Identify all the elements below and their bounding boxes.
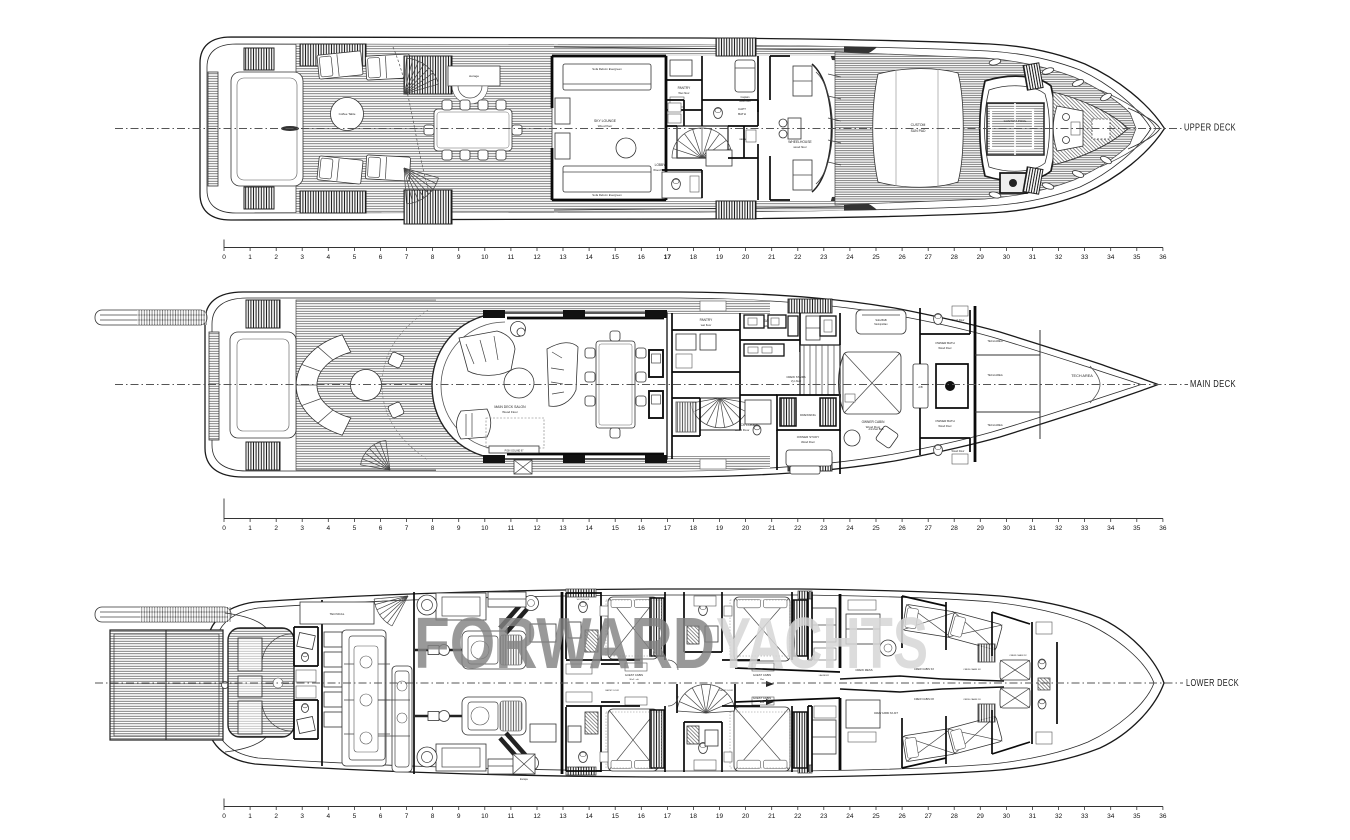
svg-text:10: 10 xyxy=(481,254,489,261)
svg-text:CARPET FLOOR: CARPET FLOOR xyxy=(605,689,620,692)
svg-text:25: 25 xyxy=(872,525,880,532)
svg-text:1: 1 xyxy=(248,254,252,261)
svg-text:Wood Floor: Wood Floor xyxy=(502,410,517,414)
svg-text:PANTRY: PANTRY xyxy=(678,86,692,90)
svg-text:3: 3 xyxy=(300,254,304,261)
svg-text:28: 28 xyxy=(951,254,959,261)
svg-text:35: 35 xyxy=(1133,813,1141,820)
svg-text:2: 2 xyxy=(274,254,278,261)
svg-text:Vyn floor: Vyn floor xyxy=(791,379,801,383)
svg-text:Captain: Captain xyxy=(741,95,750,99)
svg-text:32: 32 xyxy=(1055,525,1063,532)
svg-text:Coffee Table: Coffee Table xyxy=(339,112,356,116)
svg-text:Escape: Escape xyxy=(520,778,529,781)
svg-text:TECH AREA: TECH AREA xyxy=(987,373,1002,377)
svg-text:14: 14 xyxy=(585,813,593,820)
svg-text:9: 9 xyxy=(457,813,461,820)
svg-text:25: 25 xyxy=(872,254,880,261)
svg-text:13: 13 xyxy=(559,254,567,261)
svg-text:23: 23 xyxy=(820,813,828,820)
svg-text:5: 5 xyxy=(353,254,357,261)
svg-text:8: 8 xyxy=(431,813,435,820)
svg-text:26: 26 xyxy=(898,813,906,820)
svg-text:9: 9 xyxy=(457,525,461,532)
svg-text:CUSTOM: CUSTOM xyxy=(911,123,926,127)
svg-text:10: 10 xyxy=(481,813,489,820)
svg-text:23: 23 xyxy=(820,525,828,532)
svg-text:15: 15 xyxy=(612,813,620,820)
svg-text:13: 13 xyxy=(559,525,567,532)
svg-text:19: 19 xyxy=(716,254,724,261)
svg-text:6: 6 xyxy=(379,813,383,820)
svg-text:16: 16 xyxy=(638,525,646,532)
svg-text:14: 14 xyxy=(585,254,593,261)
svg-text:18: 18 xyxy=(690,254,698,261)
svg-text:4: 4 xyxy=(326,525,330,532)
svg-text:36: 36 xyxy=(1159,254,1167,261)
svg-text:WHEELHOUSE: WHEELHOUSE xyxy=(788,140,812,144)
svg-text:CREW CABIN 2X: CREW CABIN 2X xyxy=(1009,654,1027,657)
svg-text:23: 23 xyxy=(820,254,828,261)
svg-text:OWNER BATH: OWNER BATH xyxy=(935,419,954,423)
svg-text:12: 12 xyxy=(533,525,541,532)
svg-text:CREW CABIN SX AFT: CREW CABIN SX AFT xyxy=(874,712,899,715)
svg-text:CUSTOM POOL: CUSTOM POOL xyxy=(1004,119,1027,123)
svg-text:OWNER CABIN: OWNER CABIN xyxy=(862,420,886,424)
svg-text:DRESSING: DRESSING xyxy=(800,413,816,417)
svg-text:1: 1 xyxy=(248,813,252,820)
svg-text:WOOD FLOOR: WOOD FLOOR xyxy=(577,599,590,601)
svg-text:UPPER DECK: UPPER DECK xyxy=(1184,123,1236,134)
svg-text:8: 8 xyxy=(431,254,435,261)
svg-text:LOWER DECK: LOWER DECK xyxy=(1186,678,1239,689)
svg-text:Armchair B&B: Armchair B&B xyxy=(868,428,883,431)
svg-text:12: 12 xyxy=(533,254,541,261)
svg-text:21: 21 xyxy=(768,254,776,261)
svg-text:YACHTS: YACHTS xyxy=(716,604,928,684)
svg-text:20: 20 xyxy=(742,254,750,261)
svg-text:19: 19 xyxy=(716,525,724,532)
svg-text:20: 20 xyxy=(742,813,750,820)
svg-text:35: 35 xyxy=(1133,525,1141,532)
svg-text:10: 10 xyxy=(481,525,489,532)
svg-text:26: 26 xyxy=(898,254,906,261)
svg-text:SKY LOUNGE: SKY LOUNGE xyxy=(594,119,617,123)
svg-text:MAIN DECK: MAIN DECK xyxy=(1190,379,1236,390)
svg-text:17: 17 xyxy=(664,254,672,261)
svg-text:17: 17 xyxy=(664,525,672,532)
svg-text:OWNER STUDY: OWNER STUDY xyxy=(797,435,820,439)
svg-text:Sofa Reform Evergreen: Sofa Reform Evergreen xyxy=(592,193,622,197)
svg-text:16: 16 xyxy=(638,813,646,820)
svg-text:24: 24 xyxy=(846,254,854,261)
svg-text:SUN PAD: SUN PAD xyxy=(911,129,926,133)
svg-text:8: 8 xyxy=(431,525,435,532)
svg-text:18: 18 xyxy=(690,525,698,532)
svg-text:1: 1 xyxy=(248,525,252,532)
svg-text:TECH AREA: TECH AREA xyxy=(987,423,1002,427)
svg-text:12: 12 xyxy=(533,813,541,820)
svg-text:CARPET FLOOR: CARPET FLOOR xyxy=(719,689,734,692)
svg-text:13: 13 xyxy=(559,813,567,820)
svg-text:0: 0 xyxy=(222,525,226,532)
svg-text:Wood floor: Wood floor xyxy=(598,124,612,128)
svg-text:32: 32 xyxy=(1055,813,1063,820)
svg-text:31: 31 xyxy=(1029,254,1037,261)
svg-text:35: 35 xyxy=(1133,254,1141,261)
svg-text:TECNICAL: TECNICAL xyxy=(330,612,345,616)
svg-text:27: 27 xyxy=(925,813,933,820)
svg-text:TECH AREA: TECH AREA xyxy=(987,339,1002,343)
svg-text:17: 17 xyxy=(664,813,672,820)
svg-text:14: 14 xyxy=(585,525,593,532)
svg-text:7: 7 xyxy=(405,813,409,820)
svg-text:29: 29 xyxy=(977,525,985,532)
svg-text:24: 24 xyxy=(846,813,854,820)
svg-text:Wood Floor: Wood Floor xyxy=(801,440,815,444)
svg-text:4: 4 xyxy=(326,254,330,261)
svg-text:31: 31 xyxy=(1029,525,1037,532)
svg-text:3: 3 xyxy=(300,813,304,820)
svg-text:36: 36 xyxy=(1159,813,1167,820)
svg-text:9: 9 xyxy=(457,254,461,261)
svg-text:33: 33 xyxy=(1081,813,1089,820)
svg-text:0: 0 xyxy=(222,254,226,261)
svg-text:7: 7 xyxy=(405,254,409,261)
svg-text:31: 31 xyxy=(1029,813,1037,820)
svg-text:22: 22 xyxy=(794,813,802,820)
svg-text:Wood floor: Wood floor xyxy=(739,100,751,103)
svg-text:wet floor: wet floor xyxy=(701,323,712,327)
svg-text:34: 34 xyxy=(1107,525,1115,532)
svg-text:GUEST CABIN: GUEST CABIN xyxy=(753,696,771,700)
svg-text:TECH AREA: TECH AREA xyxy=(1071,374,1093,378)
svg-text:29: 29 xyxy=(977,254,985,261)
svg-text:36: 36 xyxy=(1159,525,1167,532)
svg-text:28: 28 xyxy=(951,525,959,532)
svg-text:5: 5 xyxy=(353,525,357,532)
svg-text:22: 22 xyxy=(794,525,802,532)
svg-text:30: 30 xyxy=(1003,254,1011,261)
svg-text:18: 18 xyxy=(690,813,698,820)
svg-text:30: 30 xyxy=(1003,813,1011,820)
svg-text:20: 20 xyxy=(742,525,750,532)
svg-text:6: 6 xyxy=(379,525,383,532)
svg-text:2: 2 xyxy=(274,525,278,532)
svg-text:storage: storage xyxy=(469,74,479,78)
svg-text:16: 16 xyxy=(638,254,646,261)
svg-text:28: 28 xyxy=(951,813,959,820)
svg-text:11: 11 xyxy=(508,254,515,261)
svg-text:7: 7 xyxy=(405,525,409,532)
svg-text:Wood Floor: Wood Floor xyxy=(952,319,965,322)
svg-text:4: 4 xyxy=(326,813,330,820)
svg-text:21: 21 xyxy=(768,813,776,820)
svg-text:Wood Floor: Wood Floor xyxy=(938,424,951,428)
svg-text:CREW CABIN DX: CREW CABIN DX xyxy=(963,698,981,701)
svg-text:Wood Floor: Wood Floor xyxy=(952,450,965,453)
svg-text:PION GOLINE 97: PION GOLINE 97 xyxy=(505,450,525,453)
svg-text:33: 33 xyxy=(1081,525,1089,532)
svg-text:29: 29 xyxy=(977,813,985,820)
svg-text:22: 22 xyxy=(794,254,802,261)
svg-text:0: 0 xyxy=(222,813,226,820)
svg-text:Wood Floor: Wood Floor xyxy=(938,346,951,350)
svg-text:34: 34 xyxy=(1107,254,1115,261)
svg-text:34: 34 xyxy=(1107,813,1115,820)
svg-text:WOOD FLOOR: WOOD FLOOR xyxy=(577,767,590,769)
svg-text:FORWARD: FORWARD xyxy=(414,604,715,684)
svg-text:OWNER BATH: OWNER BATH xyxy=(935,341,954,345)
svg-text:CAPT: CAPT xyxy=(738,107,746,111)
svg-text:Wet floor: Wet floor xyxy=(678,91,689,95)
svg-text:24: 24 xyxy=(846,525,854,532)
svg-text:19: 19 xyxy=(716,813,724,820)
svg-text:3: 3 xyxy=(300,525,304,532)
svg-text:2: 2 xyxy=(274,813,278,820)
svg-text:CREW CABIN DX: CREW CABIN DX xyxy=(914,698,934,701)
svg-text:Sofa Reform Evergreen: Sofa Reform Evergreen xyxy=(592,67,622,71)
svg-text:25: 25 xyxy=(872,813,880,820)
svg-text:wood floor: wood floor xyxy=(793,145,806,149)
svg-text:PANTRY: PANTRY xyxy=(700,318,714,322)
svg-text:27: 27 xyxy=(925,254,933,261)
svg-text:32: 32 xyxy=(1055,254,1063,261)
svg-text:A/B: A/B xyxy=(918,385,922,389)
svg-text:CREW STAIRS: CREW STAIRS xyxy=(786,375,805,379)
svg-text:21: 21 xyxy=(768,525,776,532)
svg-text:6: 6 xyxy=(379,254,383,261)
svg-text:27: 27 xyxy=(925,525,933,532)
svg-text:BATH: BATH xyxy=(738,112,746,116)
svg-text:15: 15 xyxy=(612,254,620,261)
svg-text:30: 30 xyxy=(1003,525,1011,532)
svg-text:5: 5 xyxy=(353,813,357,820)
svg-text:Metropolitan: Metropolitan xyxy=(874,323,888,326)
svg-text:11: 11 xyxy=(508,525,515,532)
svg-text:11: 11 xyxy=(508,813,515,820)
svg-text:26: 26 xyxy=(898,525,906,532)
svg-text:MAIN DECK SALON: MAIN DECK SALON xyxy=(494,405,526,409)
svg-text:Sofa B&B: Sofa B&B xyxy=(875,318,887,322)
svg-text:CREW CABIN SX: CREW CABIN SX xyxy=(963,668,981,671)
svg-text:LOBBY: LOBBY xyxy=(655,163,667,167)
svg-text:33: 33 xyxy=(1081,254,1089,261)
svg-text:15: 15 xyxy=(612,525,620,532)
